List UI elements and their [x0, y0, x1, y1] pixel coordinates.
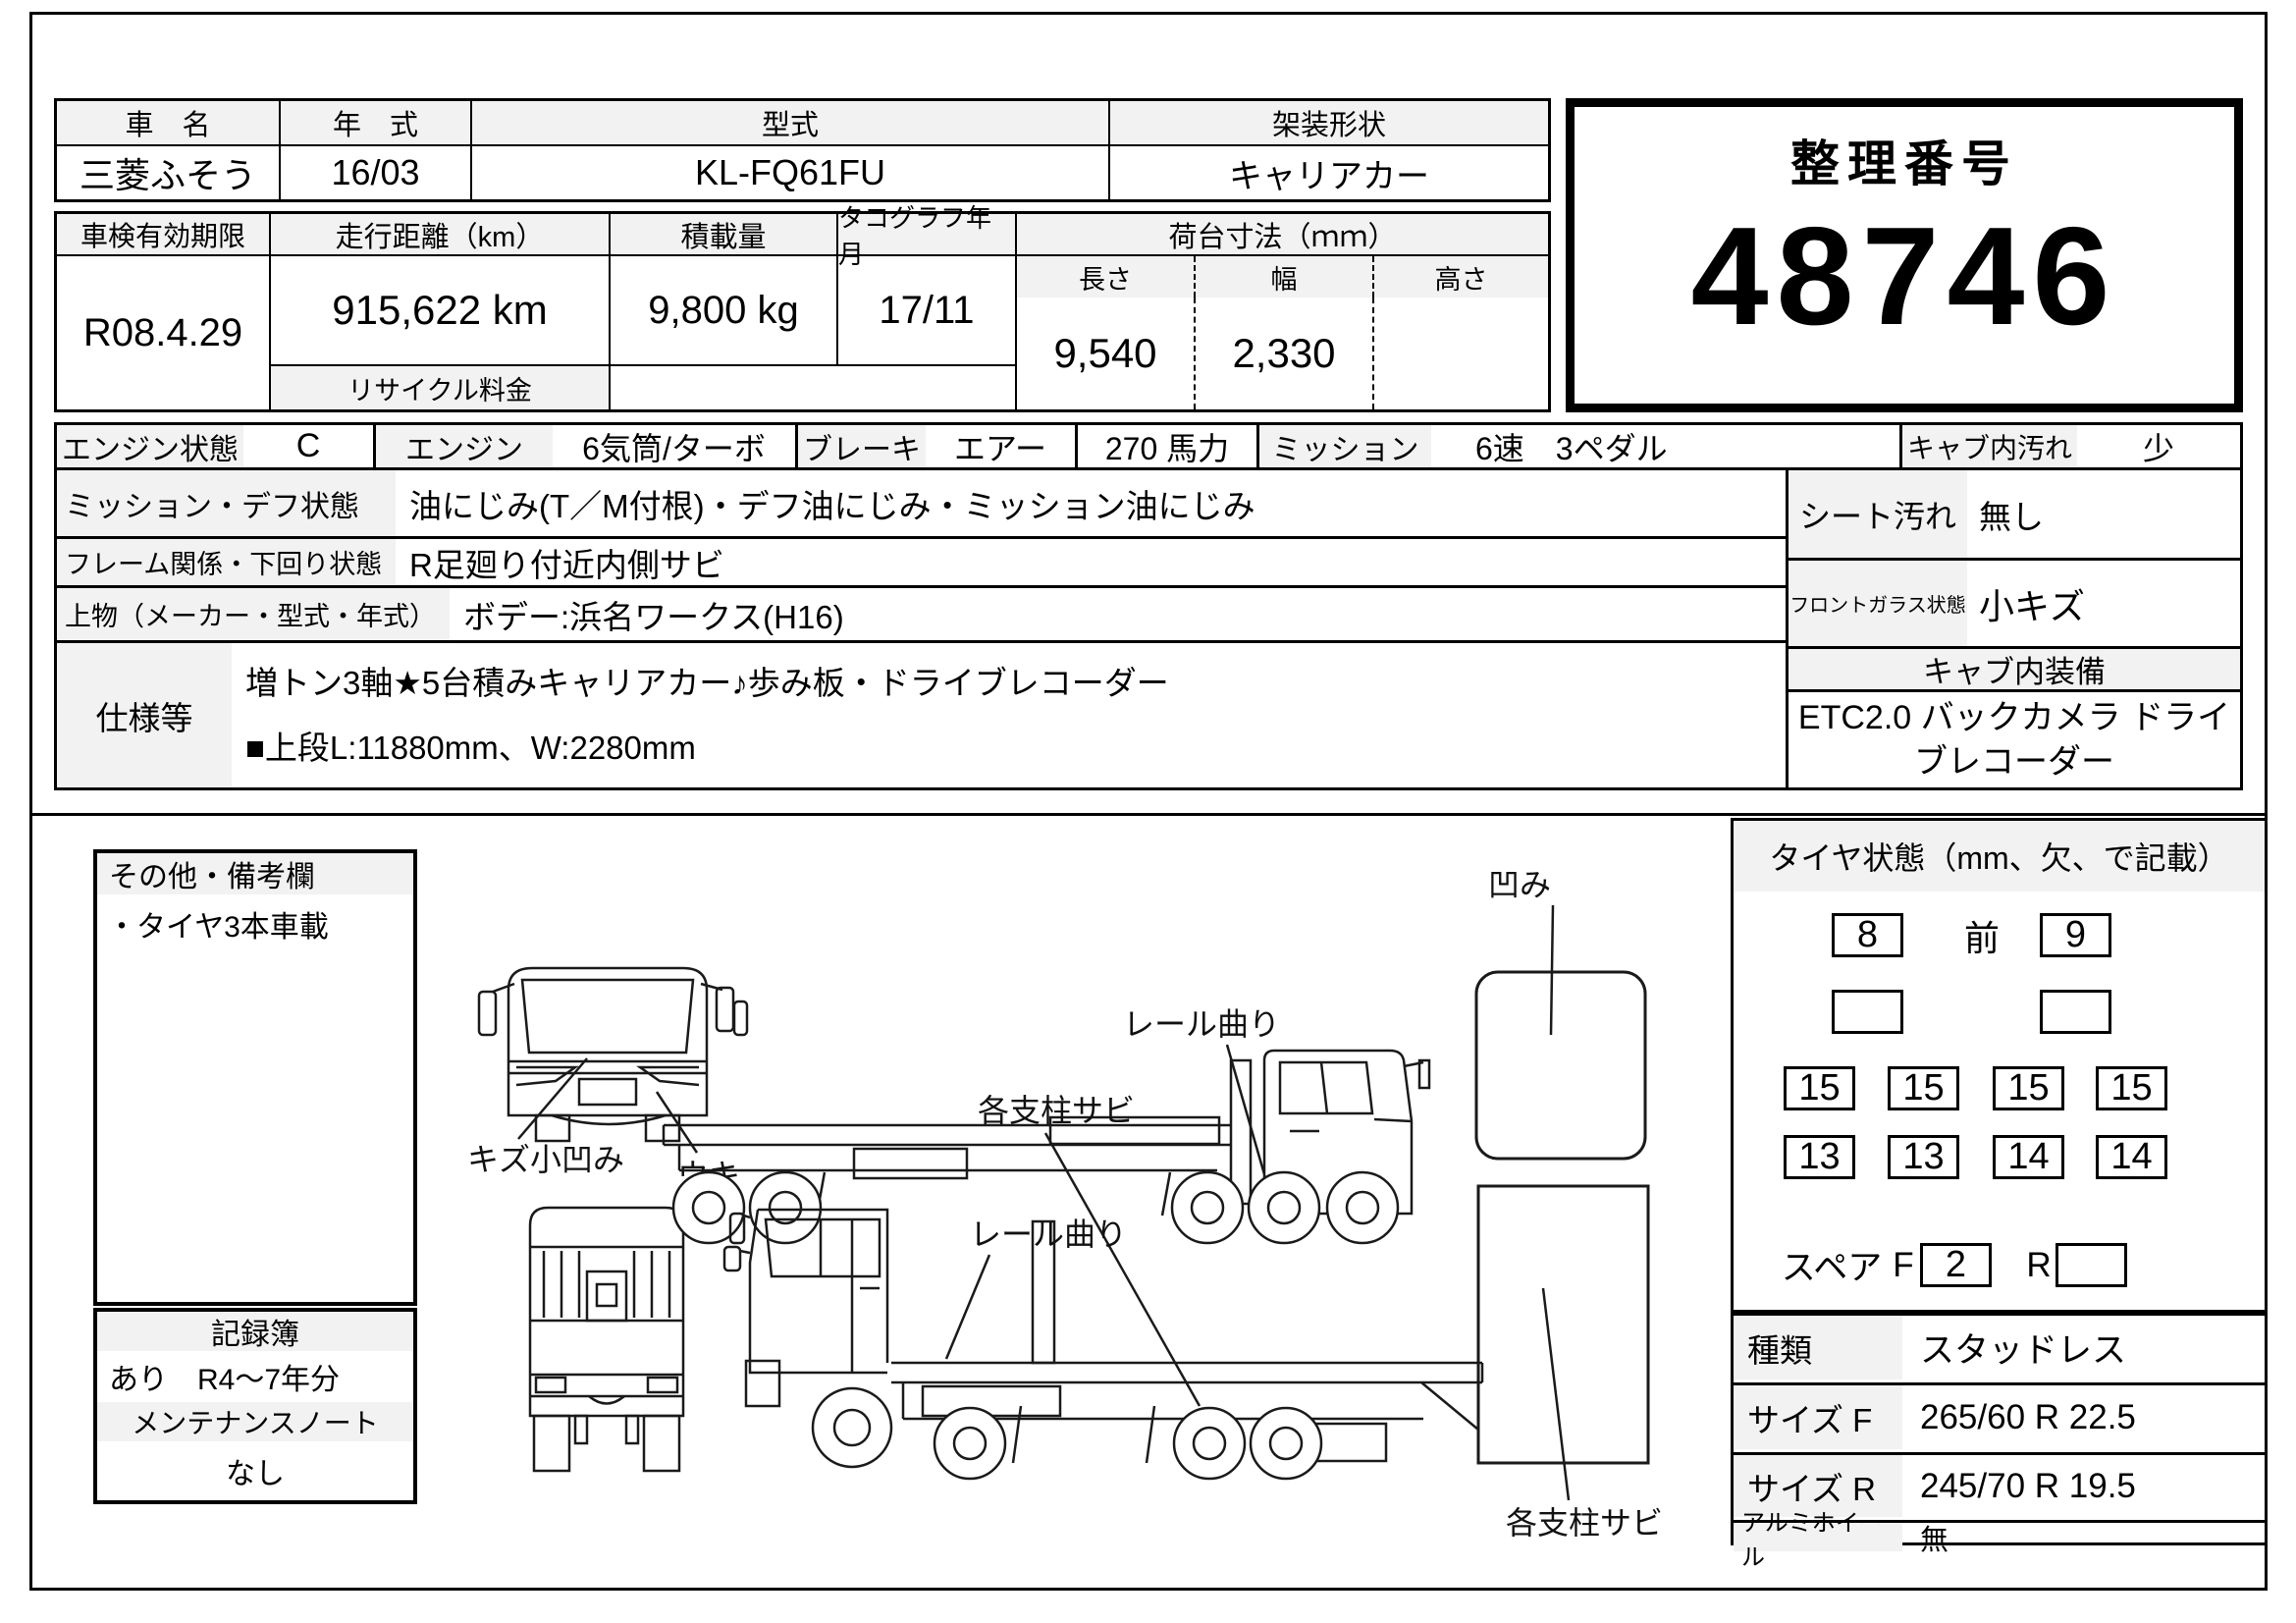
shaken-expiry-value: R08.4.29 [57, 256, 271, 409]
shaken-expiry-header: 車検有効期限 [57, 214, 271, 256]
notes-box: その他・備考欄 ・タイヤ3本車載 [93, 849, 417, 1306]
body-maker-value: ボデー:浜名ワークス(H16) [450, 588, 1786, 640]
spec-line1: 増トン3軸★5台積みキャリアカー♪歩み板・ドライブレコーダー [245, 657, 1169, 704]
rail-bend-top-label: レール曲り [1123, 1006, 1280, 1042]
dent-leader-line [1551, 905, 1553, 1035]
records-box: 記録簿 あり R4～7年分 メンテナンスノート なし [93, 1308, 417, 1504]
bed-length-header: 長さ [1017, 256, 1196, 298]
spare-label: スペア [1775, 1243, 1889, 1287]
pillar-rust-right-leader-line [1543, 1288, 1569, 1500]
bed-width-header: 幅 [1196, 256, 1374, 298]
section-divider [29, 813, 2268, 816]
engine-state-label: エンジン状態 [57, 425, 243, 467]
vehicle-inspection-sheet: 車 名 年 式 型式 架装形状 三菱ふそう 16/03 KL-FQ61FU キャ… [0, 0, 2296, 1623]
pillar-rust-mid-leader-line [1045, 1133, 1200, 1406]
tire-axle2-left [1832, 990, 1903, 1034]
condition-table: エンジン状態 C エンジン 6気筒/ターボ ブレーキ エアー 270 馬力 ミッ… [54, 422, 2243, 790]
tire-axle4-3: 14 [1993, 1135, 2064, 1179]
tire-spec-table: 種類 スタッドレス サイズ F 265/60 R 22.5 サイズ R 245/… [1731, 1313, 2268, 1545]
cab-equipment-value: ETC2.0 バックカメラ ドライブレコーダー [1789, 692, 2240, 787]
spare-rear-label: R [2024, 1243, 2054, 1287]
tire-axle3-4: 15 [2096, 1066, 2167, 1110]
tire-size-f-label: サイズ F [1734, 1385, 1902, 1449]
brake-label: ブレーキ [798, 425, 926, 467]
tire-axle4-2: 13 [1888, 1135, 1959, 1179]
model-code-value: KL-FQ61FU [472, 146, 1110, 199]
notes-line: ・タイヤ3本車載 [97, 894, 413, 953]
condition-right-block: シート汚れ 無し フロントガラス状態 小キズ キャブ内装備 ETC2.0 バック… [1789, 470, 2240, 787]
tire-axle3-3: 15 [1993, 1066, 2064, 1110]
seat-dirt-row: シート汚れ 無し [1789, 470, 2240, 561]
mileage-header: 走行距離（km） [271, 214, 611, 256]
scratch-dent-leader-line [518, 1058, 587, 1139]
model-year-header: 年 式 [281, 101, 472, 146]
windshield-label: フロントガラス状態 [1789, 561, 1967, 646]
cab-equipment-header: キャブ内装備 [1789, 649, 2240, 692]
truck-side-view-right-drawing [664, 1051, 1429, 1243]
condition-left-block: ミッション・デフ状態 油にじみ(T／M付根)・デフ油にじみ・ミッション油にじみ … [57, 470, 1789, 787]
spare-front-value: 2 [1920, 1243, 1992, 1287]
vehicle-name-value: 三菱ふそう [57, 146, 281, 199]
bed-dimensions-header: 荷台寸法（ｍｍ） [1017, 214, 1548, 256]
body-maker-row: 上物（メーカー・型式・年式） ボデー:浜名ワークス(H16) [57, 588, 1786, 643]
model-code-header: 型式 [472, 101, 1110, 146]
recycle-fee-value [611, 366, 1017, 409]
tire-front-right: 9 [2040, 913, 2111, 957]
tachograph-header: タコグラフ年月 [838, 214, 1017, 256]
reference-number-label: 整理番号 [1575, 125, 2234, 195]
bed-height-header: 高さ [1374, 256, 1548, 298]
load-capacity-header: 積載量 [611, 214, 838, 256]
body-style-header: 架装形状 [1110, 101, 1548, 146]
maintenance-note-value: なし [97, 1441, 413, 1500]
tire-size-f-value: 265/60 R 22.5 [1902, 1385, 2265, 1449]
inspection-mileage-table: 車検有効期限 走行距離（km） 積載量 タコグラフ年月 荷台寸法（ｍｍ） R08… [54, 211, 1551, 412]
engine-state-value: C [243, 425, 376, 467]
dent-label: 凹み [1488, 867, 1551, 902]
rail-bend-bottom-label: レール曲り [970, 1217, 1127, 1252]
tire-condition-title: タイヤ状態（mm、欠、で記載） [1734, 821, 2265, 892]
rail-bend-bottom-leader-line [946, 1255, 989, 1359]
rail-bend-top-leader-line [1227, 1045, 1264, 1174]
tire-condition-box: タイヤ状態（mm、欠、で記載） 8 前 9 15 15 15 15 13 13 … [1731, 818, 2268, 1313]
vehicle-identity-table: 車 名 年 式 型式 架装形状 三菱ふそう 16/03 KL-FQ61FU キャ… [54, 98, 1551, 202]
maintenance-note-title: メンテナンスノート [97, 1402, 413, 1441]
tire-axle3-1: 15 [1784, 1066, 1855, 1110]
records-value: あり R4～7年分 [97, 1351, 413, 1402]
tire-size-f-row: サイズ F 265/60 R 22.5 [1734, 1385, 2265, 1455]
tire-type-label: 種類 [1734, 1316, 1902, 1380]
body-maker-label: 上物（メーカー・型式・年式） [57, 588, 450, 640]
vehicle-name-header: 車 名 [57, 101, 281, 146]
alloy-wheel-label: アルミホイール [1734, 1523, 1902, 1551]
pillar-rust-right-label: 各支柱サビ [1506, 1505, 1663, 1541]
cab-top-view-drawing [1476, 972, 1645, 1159]
bed-length-value: 9,540 [1017, 298, 1196, 409]
alloy-wheel-row: アルミホイール 無 [1734, 1523, 2265, 1551]
mission-diff-row: ミッション・デフ状態 油にじみ(T／M付根)・デフ油にじみ・ミッション油にじみ [57, 470, 1786, 539]
tire-axle4-4: 14 [2096, 1135, 2167, 1179]
windshield-value: 小キズ [1967, 561, 2240, 646]
spec-row: 仕様等 増トン3軸★5台積みキャリアカー♪歩み板・ドライブレコーダー ■上段L:… [57, 643, 1786, 787]
load-capacity-value: 9,800 kg [611, 256, 838, 366]
bed-top-view-drawing [1478, 1186, 1648, 1463]
reference-number-value: 48746 [1575, 207, 2234, 347]
truck-front-view-drawing [479, 968, 747, 1141]
transmission-value: 6速 3ペダル [1431, 425, 1902, 467]
transmission-label: ミッション [1259, 425, 1431, 467]
tire-size-r-value: 245/70 R 19.5 [1902, 1455, 2265, 1517]
frame-underbody-label: フレーム関係・下回り状態 [57, 539, 396, 585]
horsepower-value: 270 馬力 [1078, 425, 1259, 467]
tachograph-value: 17/11 [838, 256, 1017, 366]
windshield-row: フロントガラス状態 小キズ [1789, 561, 2240, 649]
spec-line2: ■上段L:11880mm、W:2280mm [245, 722, 696, 769]
damage-diagram: キズ小凹み ウキ [432, 825, 1708, 1571]
condition-row-engine: エンジン状態 C エンジン 6気筒/ターボ ブレーキ エアー 270 馬力 ミッ… [57, 425, 2240, 470]
notes-title: その他・備考欄 [97, 853, 413, 894]
engine-value: 6気筒/ターボ [553, 425, 798, 467]
frame-underbody-value: R足廻り付近内側サビ [396, 539, 1786, 585]
seat-dirt-value: 無し [1967, 470, 2240, 558]
recycle-fee-label: リサイクル料金 [271, 366, 611, 409]
tire-type-row: 種類 スタッドレス [1734, 1316, 2265, 1385]
spec-label: 仕様等 [57, 643, 232, 787]
tire-axle2-right [2040, 990, 2111, 1034]
body-style-value: キャリアカー [1110, 146, 1548, 199]
mileage-value: 915,622 km [271, 256, 611, 366]
alloy-wheel-value: 無 [1902, 1523, 2265, 1551]
mission-diff-value: 油にじみ(T／M付根)・デフ油にじみ・ミッション油にじみ [396, 470, 1786, 536]
tire-front-left: 8 [1832, 913, 1903, 957]
frame-underbody-row: フレーム関係・下回り状態 R足廻り付近内側サビ [57, 539, 1786, 588]
seat-dirt-label: シート汚れ [1789, 470, 1967, 558]
scratch-dent-label: キズ小凹み [467, 1142, 624, 1177]
tire-type-value: スタッドレス [1902, 1316, 2265, 1380]
cab-dirt-value: 少 [2077, 425, 2240, 467]
mission-diff-label: ミッション・デフ状態 [57, 470, 396, 536]
bed-width-value: 2,330 [1196, 298, 1374, 409]
model-year-value: 16/03 [281, 146, 472, 199]
bed-height-value [1374, 298, 1548, 409]
tire-axle3-2: 15 [1888, 1066, 1959, 1110]
spare-rear-value [2056, 1243, 2127, 1287]
truck-rear-view-drawing [530, 1208, 683, 1471]
tire-axle4-1: 13 [1784, 1135, 1855, 1179]
reference-number-box: 整理番号 48746 [1566, 98, 2243, 412]
engine-label: エンジン [376, 425, 553, 467]
spare-front-label: F [1889, 1243, 1918, 1287]
cab-dirt-label: キャブ内汚れ [1902, 425, 2077, 467]
records-title: 記録簿 [97, 1312, 413, 1351]
brake-value: エアー [926, 425, 1078, 467]
pillar-rust-mid-label: 各支柱サビ [978, 1093, 1135, 1128]
tire-front-label: 前 [1948, 913, 2016, 957]
